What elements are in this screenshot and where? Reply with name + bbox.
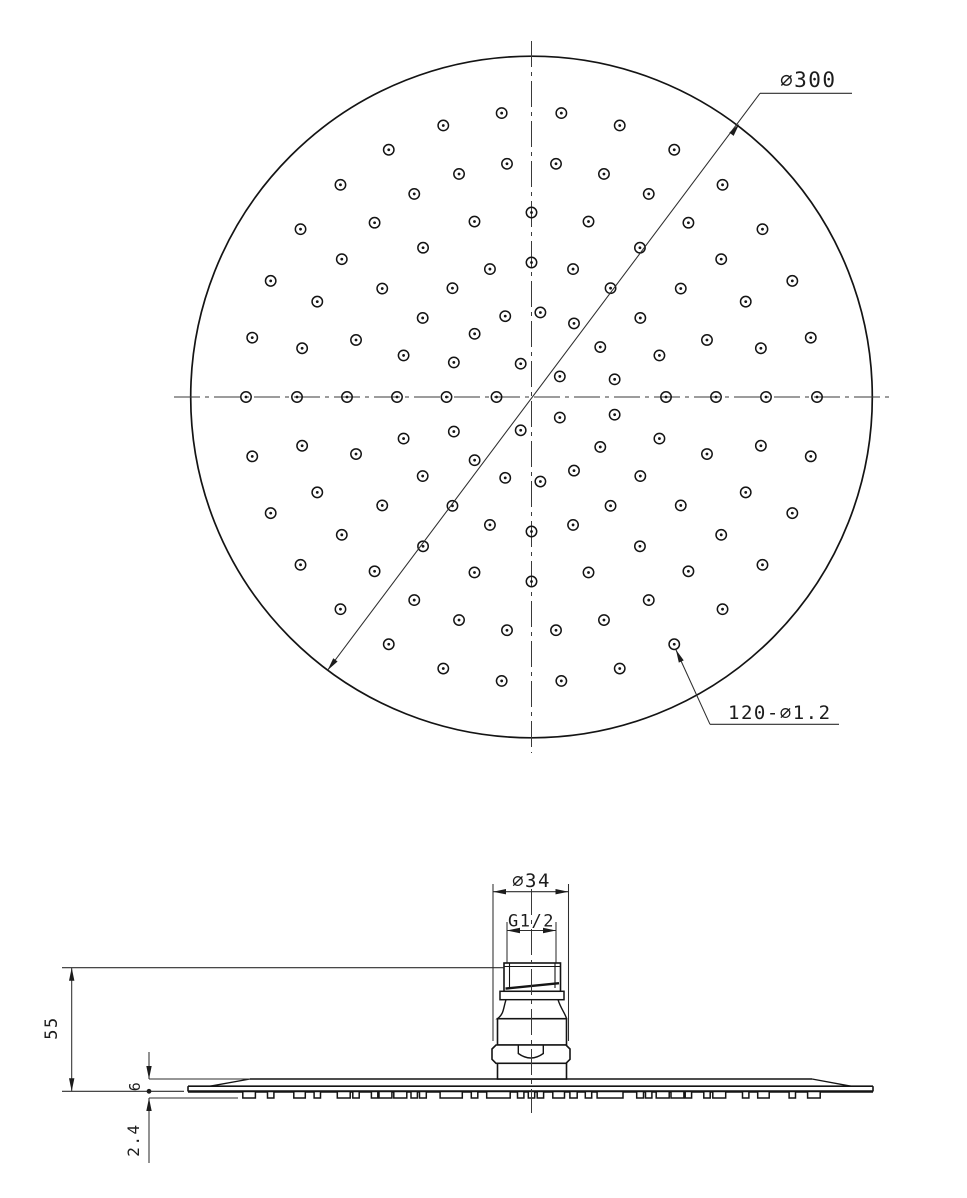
nozzle-cluster <box>713 1092 726 1099</box>
nozzle-hole-center <box>706 453 709 456</box>
nozzle-cluster <box>553 1092 565 1099</box>
holes-leader-arrow <box>676 650 684 663</box>
nozzle-hole-center <box>613 413 616 416</box>
nozzle-hole-center <box>299 228 302 231</box>
nozzle-hole-center <box>609 504 612 507</box>
nozzle-cluster <box>371 1092 377 1099</box>
nozzle-hole-center <box>452 361 455 364</box>
d34-arrow-left <box>493 889 506 894</box>
nozzle-hole-center <box>355 339 358 342</box>
nozzle-hole-center <box>458 173 461 176</box>
nozzle-cluster <box>337 1092 350 1099</box>
nozzle-hole-center <box>530 530 533 533</box>
thread-size-label: G1/2 <box>508 912 555 932</box>
nozzle-hole-center <box>558 416 561 419</box>
plate-chamfer-right <box>812 1079 851 1086</box>
h55-arrow-top <box>69 968 74 981</box>
nozzle-hole-center <box>647 599 650 602</box>
overall-height-label: 55 <box>42 1016 62 1039</box>
nozzle-cluster <box>685 1092 691 1099</box>
nozzle-hole-center <box>603 619 606 622</box>
nozzle-hole-center <box>530 580 533 583</box>
nozzle-hole-center <box>458 619 461 622</box>
holes-count-label: 120-∅1.2 <box>728 702 832 724</box>
nozzle-hole-center <box>339 183 342 186</box>
nozzle-hole-center <box>618 124 621 127</box>
nozzle-hole-center <box>613 378 616 381</box>
nozzle-hole-center <box>473 332 476 335</box>
nozzle-hole-center <box>519 429 522 432</box>
nozzle-hole-center <box>809 336 812 339</box>
nozzle-hole-center <box>761 563 764 566</box>
nozzle-hole-center <box>489 524 492 527</box>
nozzle-hole-center <box>355 453 358 456</box>
nozzle-hole-center <box>421 317 424 320</box>
nozzle-hole-center <box>506 629 509 632</box>
nozzle-hole-center <box>721 183 724 186</box>
plate-thickness-label: 6 <box>126 1081 144 1092</box>
nozzle-hole-center <box>387 148 390 151</box>
nozzle-hole-center <box>519 362 522 365</box>
nozzle-hole-center <box>765 396 768 399</box>
nozzle-hole-center <box>555 162 558 165</box>
nozzle-hole-center <box>744 491 747 494</box>
nozzle-hole-center <box>744 300 747 303</box>
overall-diameter-label: ∅300 <box>780 68 837 92</box>
nozzle-hole-center <box>373 221 376 224</box>
nozzle-hole-center <box>759 444 762 447</box>
nozzle-hole-center <box>422 246 425 249</box>
nozzle-cluster <box>420 1092 427 1099</box>
nozzle-hole-center <box>572 524 575 527</box>
nozzle-hole-center <box>402 354 405 357</box>
label-layer: ∅300 120-∅1.2 ∅34 G1/2 55 6 2.4 <box>42 68 837 1157</box>
nozzle-hole-center <box>296 396 299 399</box>
nozzle-cluster <box>597 1092 623 1099</box>
top-view <box>174 41 889 753</box>
nozzle-hole-center <box>599 446 602 449</box>
nozzle-hole-center <box>720 533 723 536</box>
nozzle-hole-center <box>673 148 676 151</box>
t6-arrow <box>146 1066 151 1079</box>
nozzle-hole-center <box>665 396 668 399</box>
nozzle-cluster <box>353 1092 359 1099</box>
nozzle-hole-center <box>504 315 507 318</box>
nozzle-cluster <box>570 1092 577 1099</box>
nozzle-hole-center <box>639 246 642 249</box>
nozzle-hole-center <box>316 491 319 494</box>
nozzle-hole-center <box>489 268 492 271</box>
nozzle-hole-center <box>809 455 812 458</box>
nozzle-cluster <box>808 1092 821 1099</box>
nozzle-hole-center <box>560 680 563 683</box>
technical-drawing-page: ∅300 120-∅1.2 ∅34 G1/2 55 6 2.4 <box>0 0 967 1198</box>
nozzle-hole-center <box>421 475 424 478</box>
nozzle-hole-center <box>346 396 349 399</box>
n24-arrow <box>146 1098 151 1111</box>
nozzle-hole-center <box>506 162 509 165</box>
nozzle-hole-center <box>340 258 343 261</box>
nozzle-hole-center <box>687 221 690 224</box>
nozzle-hole-center <box>530 261 533 264</box>
nozzle-cluster <box>243 1092 256 1099</box>
nozzle-hole-center <box>573 322 576 325</box>
nozzle-hole-center <box>373 570 376 573</box>
nozzle-cluster <box>585 1092 591 1099</box>
nozzle-hole-center <box>245 396 248 399</box>
nozzle-hole-center <box>573 469 576 472</box>
nozzle-hole-center <box>445 396 448 399</box>
nozzle-hole-center <box>269 512 272 515</box>
nozzle-hole-center <box>618 667 621 670</box>
nozzle-hole-center <box>587 220 590 223</box>
nozzle-hole-center <box>500 680 503 683</box>
nozzle-cluster <box>671 1092 684 1099</box>
nozzle-hole-center <box>530 211 533 214</box>
nozzle-height-label: 2.4 <box>124 1123 143 1156</box>
t6-dot <box>147 1089 152 1094</box>
nozzle-cluster <box>394 1092 407 1099</box>
nozzle-hole-center <box>299 563 302 566</box>
nozzle-hole-center <box>301 347 304 350</box>
nozzle-hole-center <box>658 354 661 357</box>
nozzle-hole-center <box>473 220 476 223</box>
nozzle-cluster <box>411 1092 417 1099</box>
nozzle-hole-center <box>251 336 254 339</box>
nozzle-cluster <box>268 1092 274 1099</box>
nozzle-cluster <box>471 1092 478 1099</box>
nozzle-cluster <box>294 1092 306 1099</box>
nozzle-hole-center <box>422 545 425 548</box>
nozzle-hole-center <box>687 570 690 573</box>
nozzle-cluster <box>656 1092 669 1099</box>
nozzle-hole-center <box>587 571 590 574</box>
nozzle-hole-center <box>452 430 455 433</box>
nozzle-hole-center <box>560 112 563 115</box>
nozzle-cluster <box>440 1092 462 1099</box>
nozzle-hole-center <box>451 287 454 290</box>
diameter-dimension-line <box>328 93 760 670</box>
nozzle-hole-center <box>761 228 764 231</box>
nozzle-hole-center <box>413 599 416 602</box>
nozzle-hole-center <box>720 258 723 261</box>
nozzle-hole-center <box>473 571 476 574</box>
nozzle-cluster <box>646 1092 652 1099</box>
nozzle-hole-center <box>791 512 794 515</box>
nozzle-hole-center <box>504 476 507 479</box>
nozzle-hole-center <box>495 396 498 399</box>
nozzle-hole-center <box>539 480 542 483</box>
nozzle-cluster <box>537 1092 543 1099</box>
nozzle-hole-center <box>679 504 682 507</box>
d34-arrow-right <box>556 889 569 894</box>
nozzle-hole-center <box>381 287 384 290</box>
nozzle-hole-center <box>647 193 650 196</box>
nozzle-hole-center <box>340 533 343 536</box>
diameter-arrow-upper <box>729 124 739 136</box>
nozzle-hole-center <box>381 504 384 507</box>
nozzle-hole-center <box>339 608 342 611</box>
nozzle-hole-center <box>673 643 676 646</box>
nozzle-hole-center <box>721 608 724 611</box>
nozzle-hole-center <box>759 347 762 350</box>
nozzle-hole-center <box>599 346 602 349</box>
nozzle-hole-center <box>539 311 542 314</box>
nozzle-hole-center <box>609 287 612 290</box>
nozzle-hole-center <box>639 317 642 320</box>
connector-diameter-label: ∅34 <box>512 870 551 892</box>
nozzle-hole-center <box>715 396 718 399</box>
nozzle-hole-center <box>639 545 642 548</box>
nozzle-cluster <box>758 1092 770 1099</box>
nozzle-hole-center <box>316 300 319 303</box>
dimension-layer <box>62 93 852 1163</box>
nozzle-hole-center <box>555 629 558 632</box>
nozzle-hole-center <box>558 375 561 378</box>
nozzle-hole-center <box>387 643 390 646</box>
plate-chamfer-left <box>210 1079 250 1086</box>
nozzle-hole-center <box>816 396 819 399</box>
nozzle-hole-center <box>442 124 445 127</box>
nozzle-hole-center <box>396 396 399 399</box>
nozzle-hole-center <box>603 173 606 176</box>
nozzle-hole-center <box>658 437 661 440</box>
nozzle-cluster <box>789 1092 795 1099</box>
nozzle-hole-center <box>706 339 709 342</box>
nozzle-hole-center <box>251 455 254 458</box>
nozzle-cluster <box>637 1092 644 1099</box>
shower-head-technical-drawing: ∅300 120-∅1.2 ∅34 G1/2 55 6 2.4 <box>0 0 967 1198</box>
nozzle-hole-center <box>572 268 575 271</box>
nozzle-hole-center <box>639 475 642 478</box>
nozzle-hole-center <box>679 287 682 290</box>
nozzle-cluster <box>487 1092 511 1099</box>
nozzle-cluster <box>379 1092 392 1099</box>
nozzle-cluster <box>704 1092 710 1099</box>
nozzle-hole-center <box>413 193 416 196</box>
nozzle-cluster <box>314 1092 320 1099</box>
nozzle-hole-center <box>473 459 476 462</box>
nozzle-hole-center <box>269 279 272 282</box>
nozzle-hole-center <box>402 437 405 440</box>
diameter-arrow-lower <box>328 658 338 670</box>
nozzle-hole-center <box>301 444 304 447</box>
nozzle-cluster <box>743 1092 749 1099</box>
h55-arrow-bottom <box>69 1078 74 1091</box>
nozzle-cluster <box>518 1092 524 1099</box>
nozzle-hole-center <box>442 667 445 670</box>
nozzle-hole-center <box>500 112 503 115</box>
nozzle-hole-center <box>791 279 794 282</box>
